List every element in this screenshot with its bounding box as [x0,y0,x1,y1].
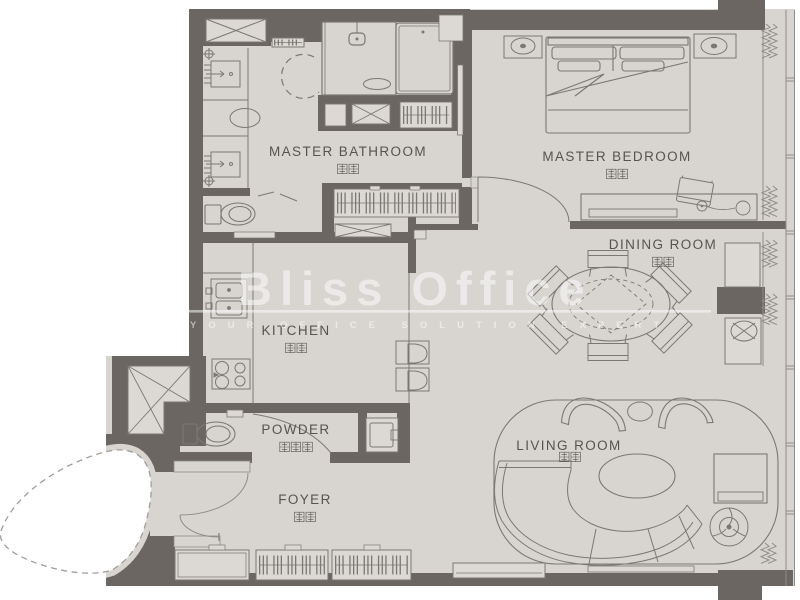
svg-text:MASTER BATHROOM: MASTER BATHROOM [269,144,427,159]
svg-text:YOUR OFFICE SOLUTION EXPERT: YOUR OFFICE SOLUTION EXPERT [190,320,671,331]
svg-text:DINING ROOM: DINING ROOM [609,237,717,252]
svg-text:Bliss Office: Bliss Office [238,262,593,315]
svg-text:MASTER BEDROOM: MASTER BEDROOM [542,149,691,164]
svg-text:LIVING ROOM: LIVING ROOM [516,438,621,453]
svg-text:POWDER: POWDER [261,422,330,437]
svg-text:FOYER: FOYER [278,492,332,507]
